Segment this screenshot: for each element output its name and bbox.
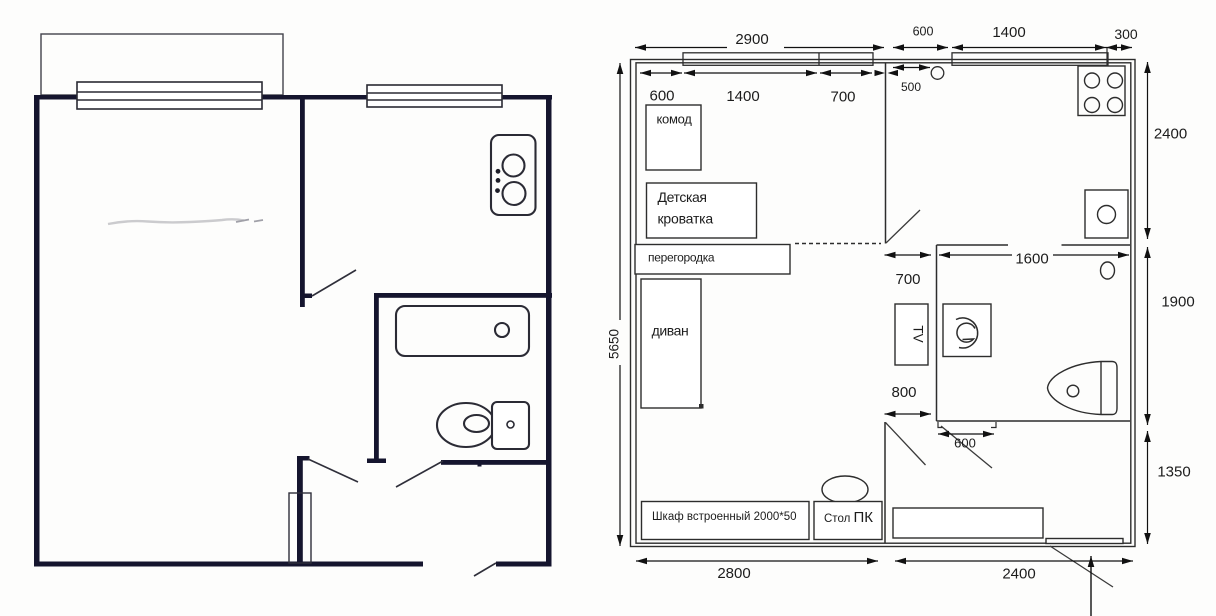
svg-text:комод: комод — [656, 112, 692, 127]
svg-text:1350: 1350 — [1157, 464, 1190, 481]
svg-text:диван: диван — [652, 323, 689, 339]
svg-text:1900: 1900 — [1161, 294, 1194, 311]
svg-text:600: 600 — [649, 88, 674, 105]
svg-text:700: 700 — [830, 89, 855, 106]
svg-text:600: 600 — [913, 25, 934, 39]
svg-text:TV: TV — [911, 325, 926, 342]
svg-text:2900: 2900 — [735, 31, 768, 48]
svg-text:1400: 1400 — [726, 88, 759, 105]
svg-text:2400: 2400 — [1002, 566, 1035, 583]
svg-text:кроватка: кроватка — [658, 211, 714, 227]
svg-text:5650: 5650 — [607, 329, 622, 359]
svg-text:1600: 1600 — [1015, 251, 1048, 268]
svg-text:перегородка: перегородка — [648, 251, 715, 265]
svg-text:600: 600 — [954, 436, 976, 451]
svg-text:300: 300 — [1114, 26, 1138, 42]
svg-text:Детская: Детская — [658, 189, 707, 205]
svg-text:Шкаф встроенный 2000*50: Шкаф встроенный 2000*50 — [652, 511, 797, 523]
svg-text:1400: 1400 — [992, 24, 1025, 41]
svg-text:2400: 2400 — [1154, 126, 1187, 143]
svg-text:2800: 2800 — [717, 565, 750, 582]
svg-text:700: 700 — [895, 271, 920, 288]
svg-text:500: 500 — [901, 80, 921, 94]
svg-text:800: 800 — [891, 384, 916, 401]
